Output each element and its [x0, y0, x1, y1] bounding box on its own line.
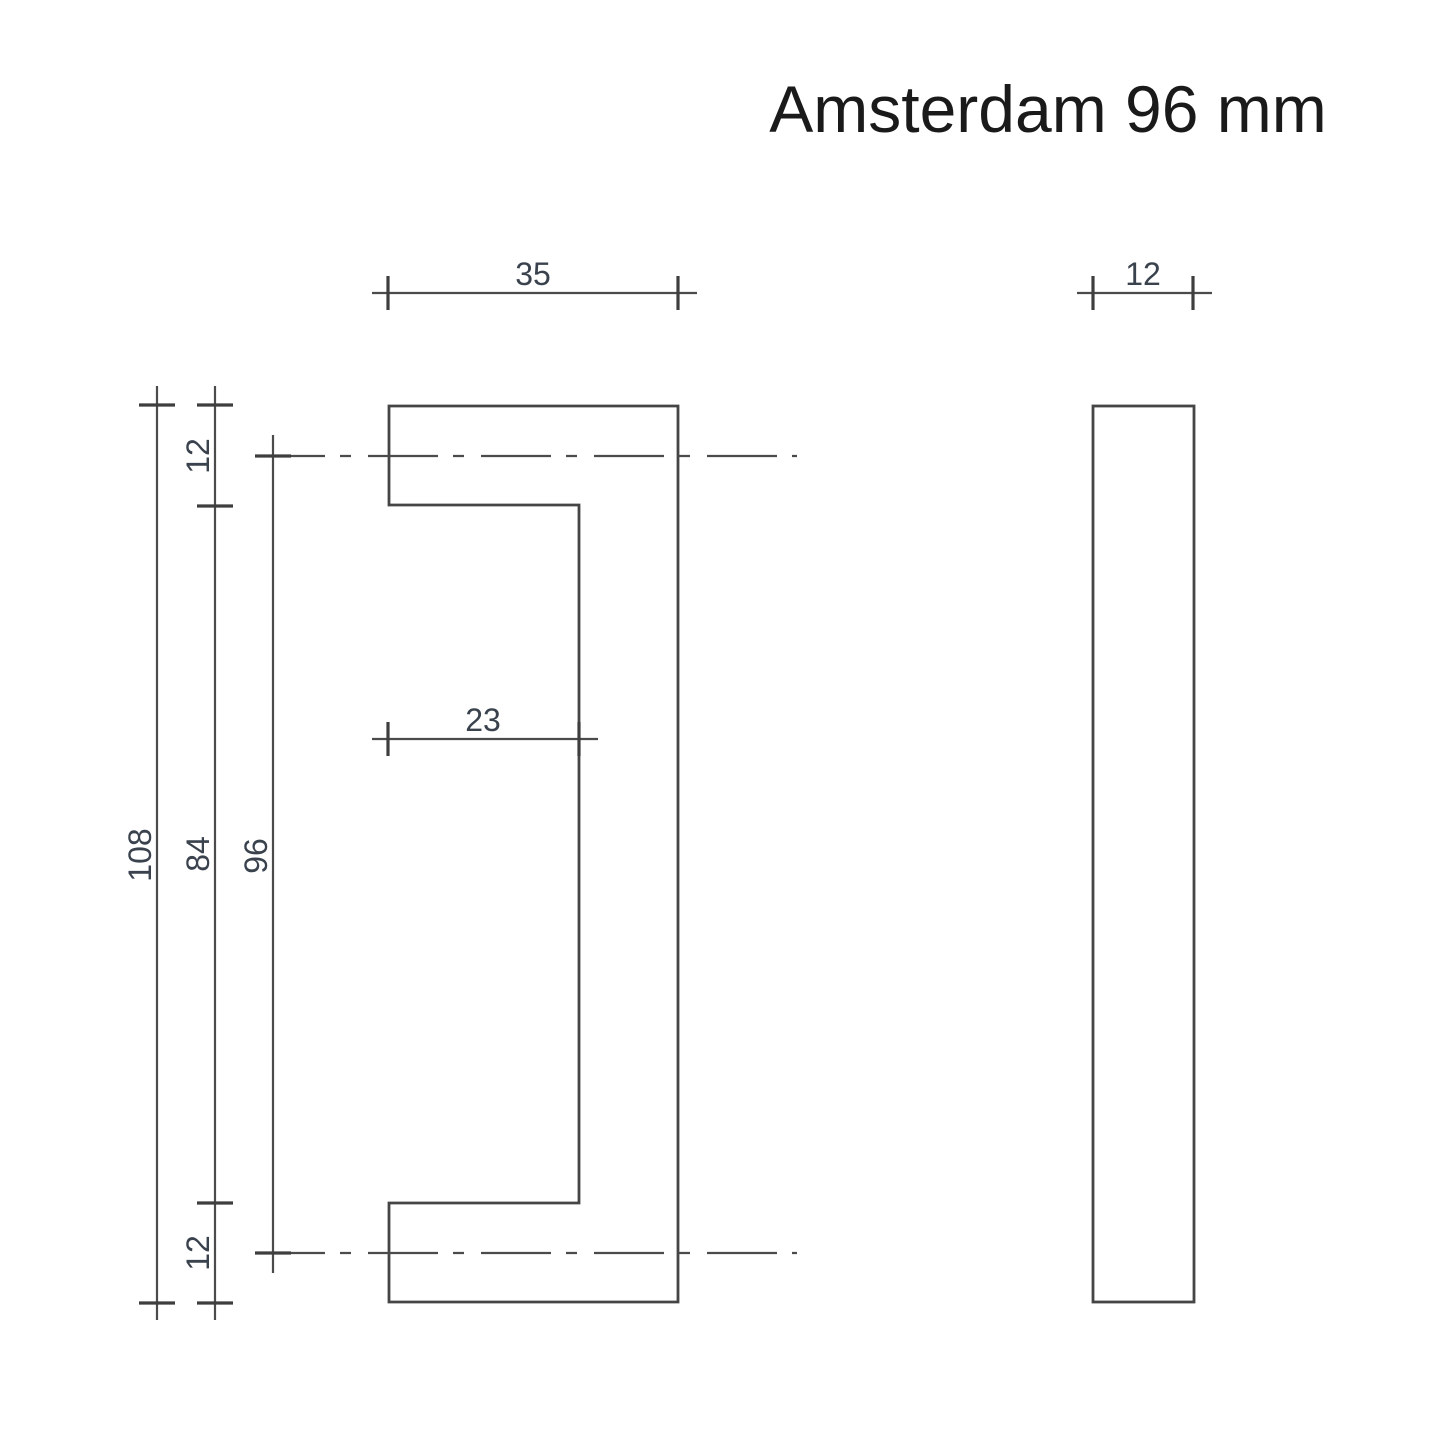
side-view-outline	[1093, 406, 1194, 1302]
dimension-label: 12	[180, 438, 216, 474]
drawing-title: Amsterdam 96 mm	[769, 72, 1326, 146]
dimension-inner-depth: 23	[372, 702, 598, 756]
dimension-overall-height: 108	[122, 386, 175, 1320]
front-view	[255, 406, 797, 1302]
side-view	[1093, 406, 1194, 1302]
dimension-label: 96	[238, 838, 274, 874]
dimension-front-width: 35	[372, 256, 697, 310]
dimension-label: 23	[465, 702, 501, 738]
dimension-side-thickness: 12	[1077, 256, 1212, 310]
dimension-hole-spacing: 96	[238, 435, 291, 1273]
dimension-label: 84	[180, 836, 216, 872]
dimension-label: 12	[180, 1235, 216, 1271]
front-view-outline	[389, 406, 678, 1302]
dimension-label: 108	[122, 828, 158, 881]
technical-drawing-page: Amsterdam 96 mm 35 12	[0, 0, 1445, 1438]
dimension-label: 35	[515, 256, 551, 292]
dimension-label: 12	[1125, 256, 1161, 292]
handle-technical-drawing: Amsterdam 96 mm 35 12	[0, 0, 1445, 1438]
dimension-height-chain: 12 84 12	[180, 386, 233, 1320]
